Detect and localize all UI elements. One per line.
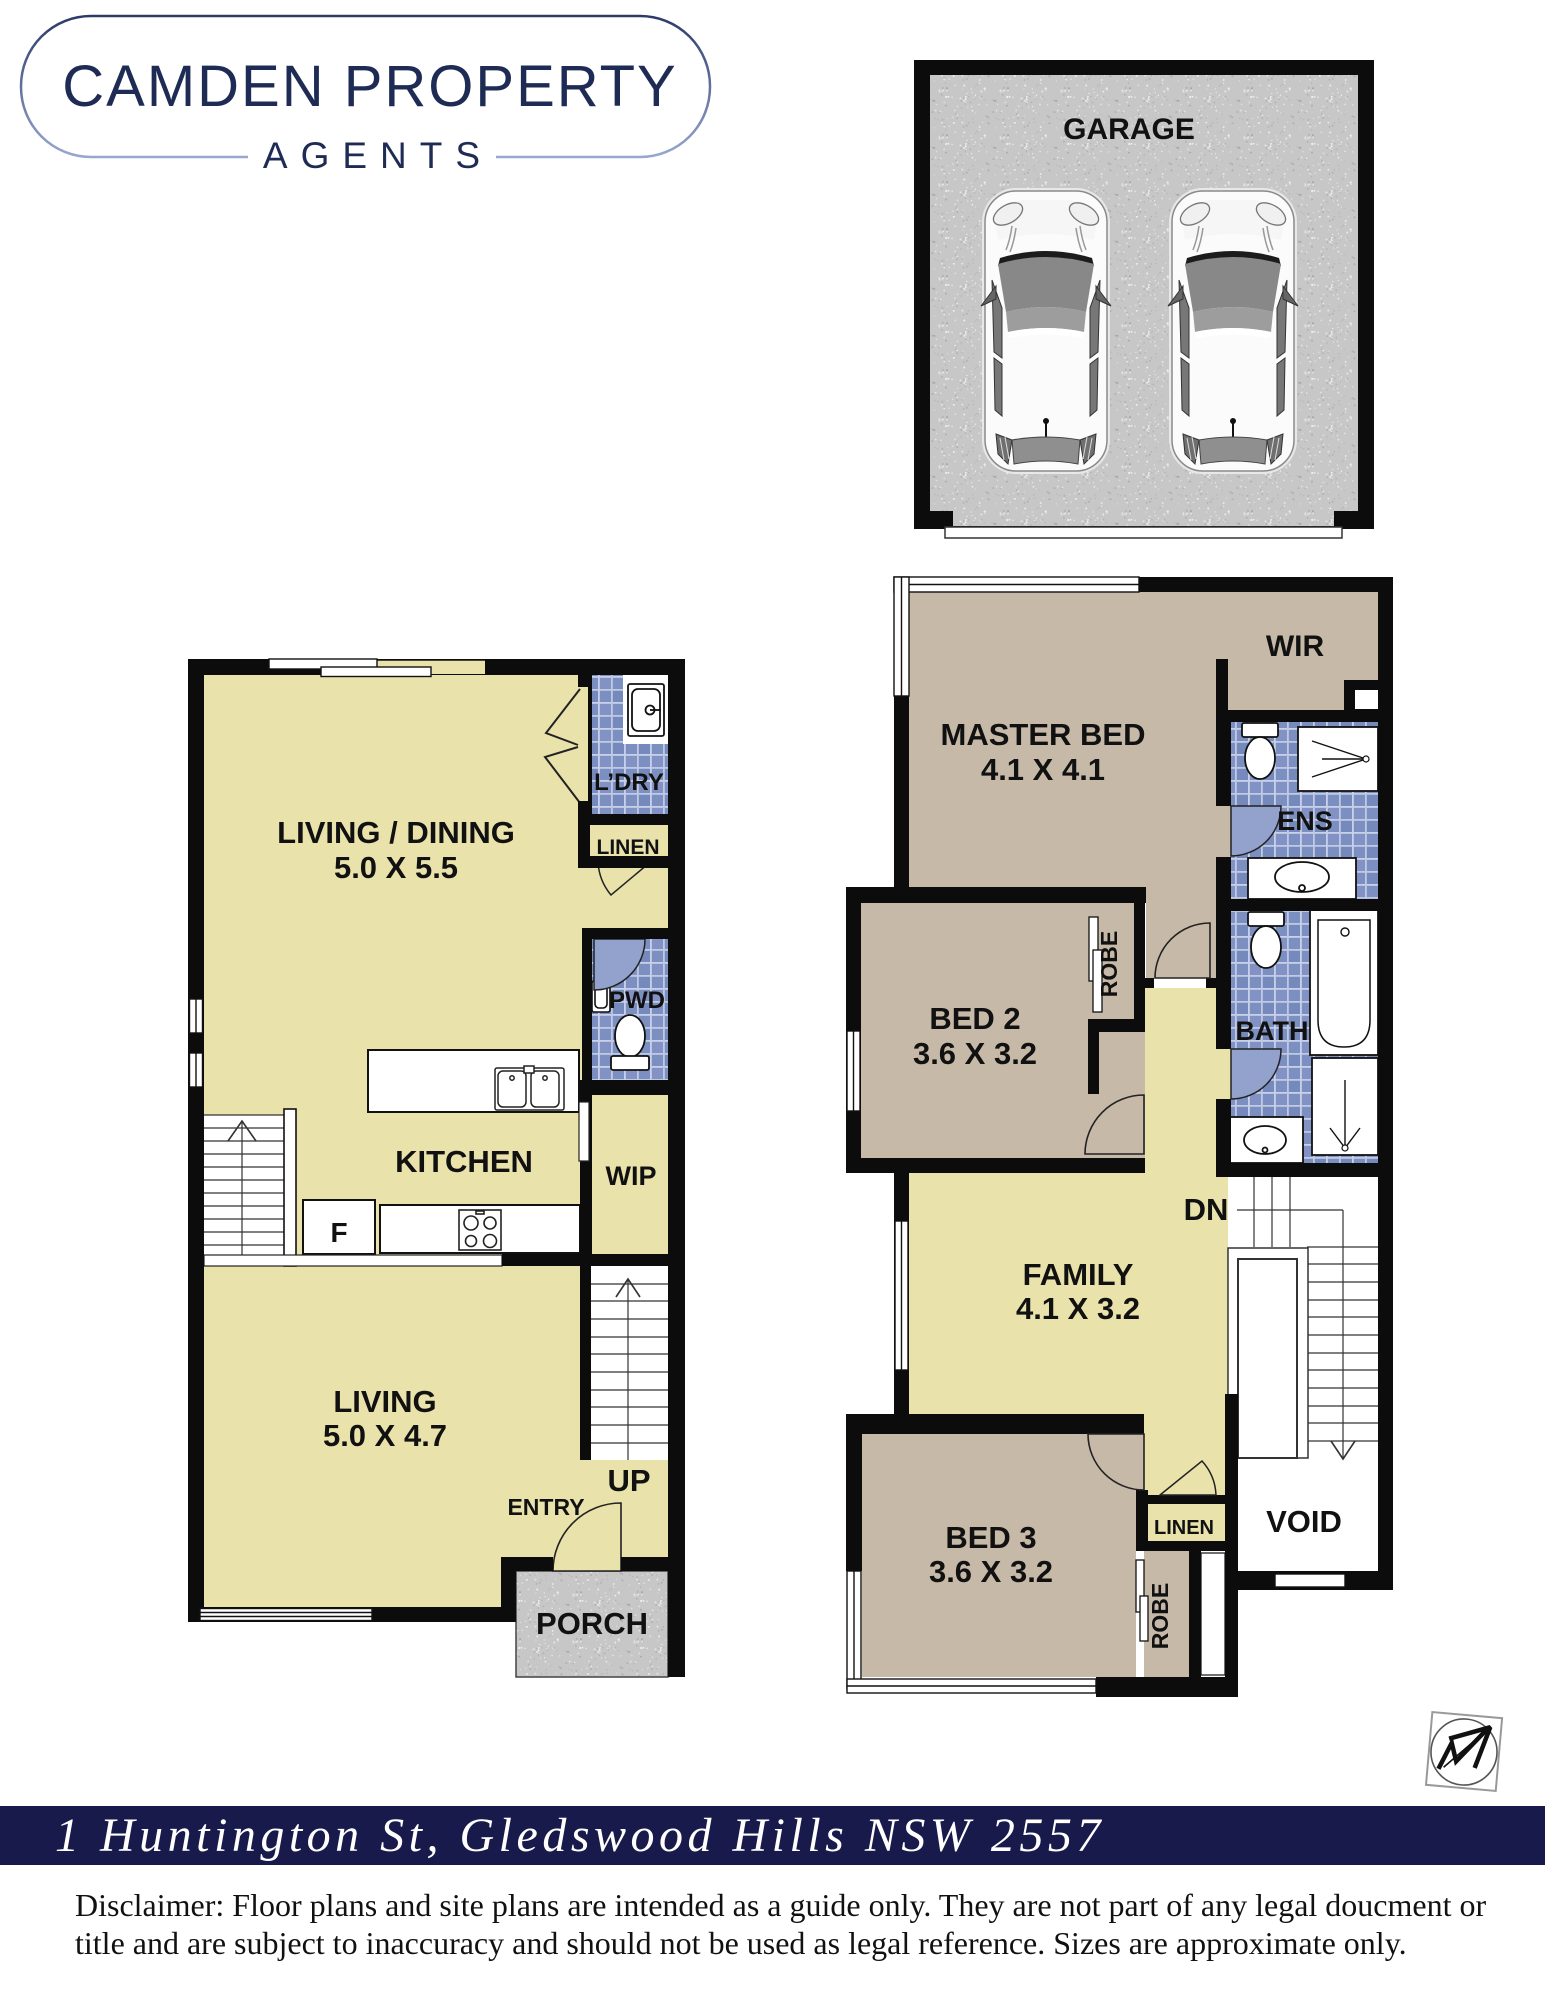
svg-text:Disclaimer: Floor plans and si: Disclaimer: Floor plans and site plans a… — [75, 1887, 1486, 1923]
svg-text:PORCH: PORCH — [536, 1606, 648, 1641]
svg-text:BED 2: BED 2 — [929, 1001, 1020, 1036]
svg-text:WIP: WIP — [606, 1161, 657, 1191]
svg-text:UP: UP — [607, 1463, 650, 1498]
svg-text:4.1 X 3.2: 4.1 X 3.2 — [1016, 1291, 1140, 1326]
svg-text:ENTRY: ENTRY — [507, 1494, 584, 1520]
svg-text:MASTER BED: MASTER BED — [941, 717, 1146, 752]
svg-text:BED 3: BED 3 — [945, 1520, 1036, 1555]
svg-text:AGENTS: AGENTS — [263, 135, 493, 176]
svg-text:CAMDEN PROPERTY: CAMDEN PROPERTY — [62, 54, 677, 119]
svg-text:BATH: BATH — [1236, 1016, 1309, 1046]
svg-text:title and are subject to inacc: title and are subject to inaccuracy and … — [75, 1925, 1407, 1961]
svg-text:ROBE: ROBE — [1096, 931, 1122, 997]
svg-text:1 Huntington St, Gledswood Hil: 1 Huntington St, Gledswood Hills NSW 255… — [55, 1809, 1105, 1862]
svg-text:LIVING: LIVING — [333, 1384, 436, 1419]
svg-text:3.6 X 3.2: 3.6 X 3.2 — [929, 1554, 1053, 1589]
svg-text:4.1 X 4.1: 4.1 X 4.1 — [981, 752, 1105, 787]
svg-text:LINEN: LINEN — [1154, 1517, 1214, 1539]
svg-text:WIR: WIR — [1266, 630, 1325, 663]
svg-text:F: F — [330, 1217, 347, 1248]
svg-text:KITCHEN: KITCHEN — [395, 1144, 533, 1179]
svg-text:3.6 X 3.2: 3.6 X 3.2 — [913, 1036, 1037, 1071]
svg-text:5.0 X 4.7: 5.0 X 4.7 — [323, 1418, 447, 1453]
svg-text:GARAGE: GARAGE — [1063, 113, 1195, 146]
svg-text:ENS: ENS — [1277, 806, 1333, 836]
svg-text:FAMILY: FAMILY — [1023, 1257, 1134, 1292]
svg-text:ROBE: ROBE — [1147, 1583, 1173, 1649]
svg-text:PWD: PWD — [609, 987, 665, 1014]
svg-text:LIVING / DINING: LIVING / DINING — [277, 815, 515, 850]
svg-text:DN: DN — [1184, 1192, 1229, 1227]
svg-text:5.0 X 5.5: 5.0 X 5.5 — [334, 850, 458, 885]
svg-text:VOID: VOID — [1266, 1504, 1342, 1539]
svg-text:LINEN: LINEN — [597, 836, 660, 859]
svg-text:L’DRY: L’DRY — [594, 769, 664, 796]
